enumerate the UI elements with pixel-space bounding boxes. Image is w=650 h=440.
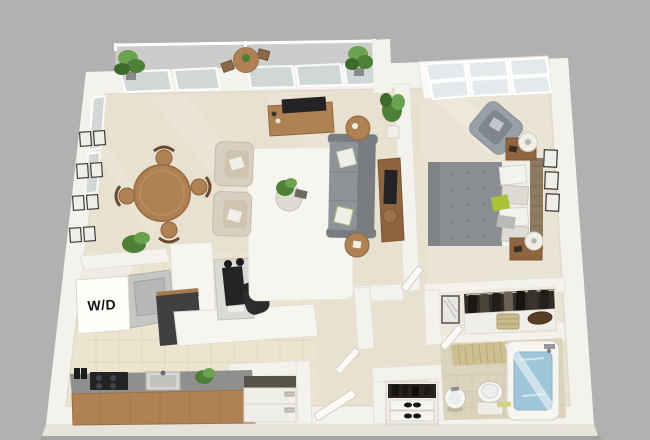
counter-plant-leaf (203, 368, 215, 378)
refrigerator (244, 376, 296, 422)
boot (424, 386, 430, 395)
pedestal-sink (445, 386, 466, 412)
sink-bowl (449, 392, 462, 405)
shelf-plant-leaf (134, 232, 150, 244)
desk-equipment (236, 258, 244, 266)
throw-pillow (337, 148, 356, 167)
balcony-plant-left-leaf (127, 59, 145, 73)
picture-frame (546, 194, 560, 212)
desk-equipment (224, 260, 232, 268)
picture-frame (77, 164, 89, 179)
duvet-fold (428, 162, 440, 246)
shoe-cabinet-group (386, 382, 438, 424)
shoe (413, 403, 421, 408)
dining-table (134, 165, 190, 221)
dining-chair (191, 179, 207, 195)
window-pane (512, 76, 551, 94)
floor-plant-leaf (391, 94, 405, 110)
window-pane (468, 60, 508, 78)
stove (90, 372, 128, 390)
armchair (214, 141, 254, 186)
console-tv (383, 170, 397, 204)
fridge-top-gap (244, 376, 296, 388)
sink-faucet (161, 371, 166, 376)
picture-frame (73, 196, 85, 211)
lamp-finial (531, 238, 537, 244)
burner (96, 375, 102, 381)
window-pane (471, 78, 510, 96)
picture-frame (91, 163, 103, 178)
dining-chair (161, 222, 177, 238)
coffee-table-plant-leaf (285, 178, 297, 188)
side-table-decor (352, 123, 358, 129)
floor-plant-leaf (380, 93, 392, 107)
planter (354, 68, 364, 76)
console-desk-group (378, 158, 404, 242)
lamp-finial (525, 139, 531, 145)
window-pane (426, 62, 466, 81)
armchair (212, 191, 252, 236)
window-pane (430, 80, 469, 99)
side-table (346, 116, 370, 140)
bistro-table-plant (242, 54, 250, 62)
dining-chair (119, 188, 135, 204)
sofa-group (326, 134, 378, 239)
boot (412, 386, 419, 396)
bedroom-window (418, 56, 552, 99)
kitchen-sink (146, 371, 180, 391)
boot (402, 385, 408, 396)
tub-faucet (544, 344, 555, 349)
shoe (413, 414, 421, 419)
shoe (404, 403, 412, 408)
side-table-decor (352, 240, 361, 248)
window-pane (510, 58, 549, 76)
picture-frame (84, 227, 96, 242)
sink-basin (150, 375, 176, 387)
picture-frame (545, 172, 559, 190)
stool (383, 209, 397, 223)
bathroom (440, 338, 566, 420)
lumbar-pillow (496, 215, 515, 229)
toilet-lid (482, 384, 498, 398)
dining-chair (156, 150, 172, 166)
bed-group (428, 158, 543, 250)
burner (110, 375, 116, 381)
washer-dryer-label: W/D (87, 296, 117, 313)
storage-basket (497, 314, 519, 329)
sofa-back (356, 140, 376, 232)
shoe (404, 414, 412, 419)
stove-top (90, 372, 128, 390)
boot (392, 385, 399, 396)
tub-drain (547, 349, 551, 353)
burner (96, 383, 102, 389)
balcony-plant-right-leaf (357, 55, 373, 69)
picture-frame (70, 228, 82, 243)
fridge-niche-wall (296, 360, 312, 424)
bath-mat (497, 402, 511, 408)
burner (110, 383, 116, 389)
window-pane (174, 68, 220, 90)
planter (387, 126, 399, 138)
balcony-plant-left-leaf (114, 63, 130, 75)
picture-frame (80, 132, 92, 147)
floor-plan-render: W/D (0, 0, 650, 440)
bed-pillow (499, 165, 527, 186)
picture-frame (87, 195, 99, 210)
front-wall-face (42, 424, 598, 436)
keyboard (228, 306, 244, 313)
hall-wall (354, 287, 374, 350)
bedroom-wall-frames (544, 150, 560, 212)
railing-post (114, 43, 117, 51)
console-decor (276, 119, 281, 124)
nightstand-decor (514, 245, 523, 252)
throw-pillow (334, 206, 353, 225)
balcony-divider-wall (372, 39, 392, 93)
canister (74, 368, 80, 379)
balcony-plant-right-leaf (345, 58, 359, 70)
console-decor (272, 112, 277, 117)
picture-frame (94, 131, 106, 146)
computer-monitor (222, 266, 246, 306)
canister (81, 368, 87, 379)
bathtub (505, 341, 559, 420)
fridge-handle (285, 408, 294, 412)
floor-plan-canvas: W/D (0, 0, 650, 440)
picture-frame (544, 150, 558, 168)
fridge-handle (285, 392, 294, 396)
cabinet-front (72, 390, 255, 425)
window-pane (296, 64, 343, 86)
